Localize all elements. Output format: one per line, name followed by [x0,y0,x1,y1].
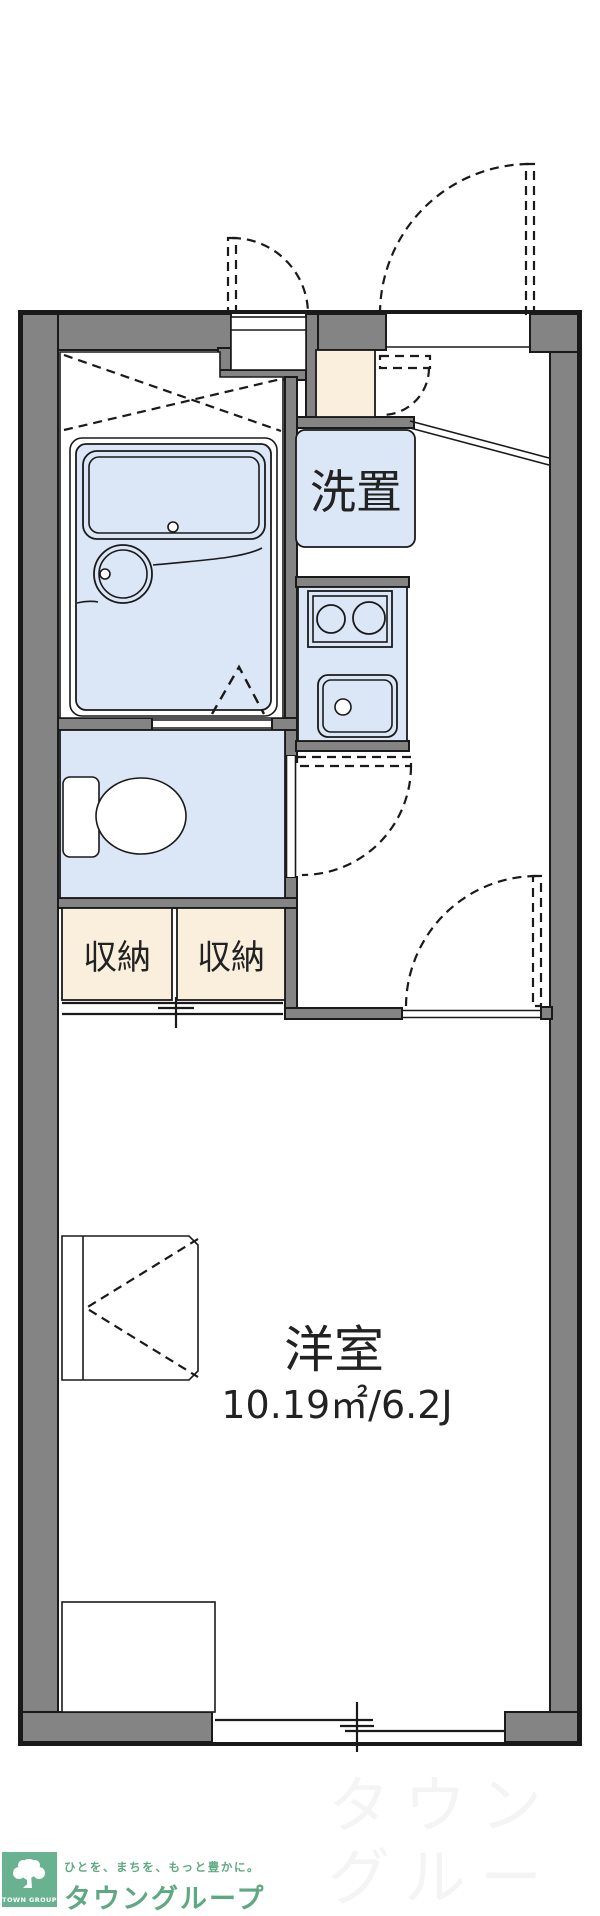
bathtub-drain [168,522,178,532]
toilet-room [60,720,285,898]
living-room: 洋室 10.19㎡/6.2J [62,1236,453,1712]
wall-bath-kitchen [285,377,297,756]
kitchen-bottom-cap [296,741,409,751]
wall-room-top [285,1008,402,1019]
alcove-box [231,317,306,370]
room-door-arc [406,876,537,1006]
toilet-door [286,756,411,877]
wall-bottom-left [22,1712,212,1742]
wall-genkan-cap [294,417,414,428]
footer: TOWN GROUP ひとを、まちを、もっと豊かに。 タウングループ [0,1845,600,1907]
entrance-cabinet-door [380,356,430,415]
alcove-door-arc [232,238,308,314]
utility-alcove-door-swing [228,238,308,314]
toilet-bowl [96,778,186,854]
washer-space: 洗置 [296,430,415,547]
wall-toilet-top-left [58,718,152,730]
cabinet-door-panel [380,356,430,368]
toilet-door-arc [302,766,411,875]
brand-text: ひとを、まちを、もっと豊かに。 タウングループ [64,1859,265,1916]
brand-name: タウングループ [64,1877,265,1916]
logo-caption: TOWN GROUP [2,1896,57,1904]
alcove-door-panel [228,238,236,314]
utility-alcove [231,317,306,370]
cabinet-door-arc [382,368,429,415]
tree-icon [9,1856,50,1894]
wall-closet-top [58,898,297,908]
closet-left-label: 収納 [83,938,151,978]
entrance-door-arc [380,164,530,314]
wall-bottom-right [505,1712,578,1742]
brand-tagline: ひとを、まちを、もっと豊かに。 [64,1859,265,1875]
living-room-label: 洋室 [284,1321,384,1379]
entrance-door-swing [380,164,534,314]
town-group-logo: TOWN GROUP [2,1852,57,1907]
stove-burner-right [353,602,385,634]
toilet-door-panel [297,757,411,766]
floor-plan-page: 洗置 収納 収納 [0,0,600,1907]
hall-diagonal-line2 [410,428,549,465]
living-room-area-label: 10.19㎡/6.2J [221,1383,452,1427]
entrance-door-panel [526,164,534,314]
washer-label: 洗置 [310,465,402,519]
wall-toilet-top-right [272,718,297,730]
bed-platform [62,1602,215,1712]
wall-room-top-right [541,1007,552,1019]
kitchen-sink [318,675,397,737]
kitchen-top-cap [296,577,409,587]
wall-top-left [58,314,231,350]
wall-top-right-pillar [530,314,578,352]
room-door-panel [533,876,541,1006]
toilet-tank [63,777,99,857]
kitchen [298,587,407,741]
wall-toilet-right-stub [285,877,297,1010]
genkan-step [316,350,375,417]
bathroom [60,352,283,718]
storage-closets: 収納 収納 [62,908,285,1028]
wall-left [22,314,58,1742]
stove-burner-left [317,605,345,633]
living-room-door [402,876,541,1018]
hall-diagonal-line1 [410,421,549,458]
sink-drain [335,699,351,715]
toilet-door-opening [286,756,296,877]
wall-top-mid [318,314,386,350]
closet-right-label: 収納 [197,938,265,978]
wall-right [550,352,578,1742]
floor-plan: 洗置 収納 収納 [0,0,600,1907]
wash-basin-drain [100,569,110,579]
